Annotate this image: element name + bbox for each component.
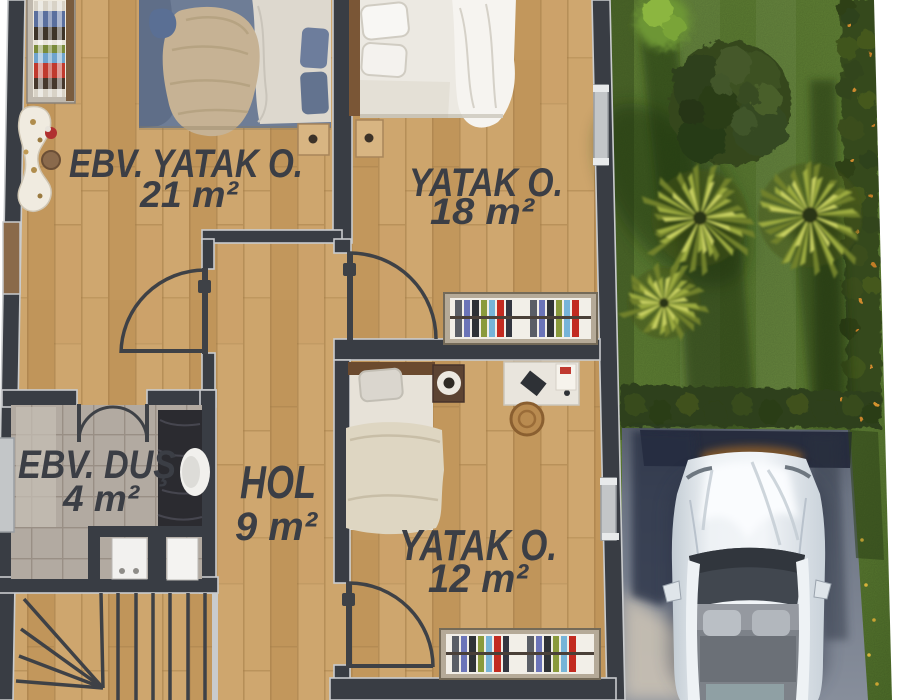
svg-text:9 m²: 9 m² <box>235 505 319 549</box>
svg-text:21 m²: 21 m² <box>139 174 240 215</box>
svg-text:12 m²: 12 m² <box>428 557 530 601</box>
svg-text:HOL: HOL <box>240 456 316 508</box>
svg-text:18 m²: 18 m² <box>430 191 536 232</box>
svg-text:4 m²: 4 m² <box>62 478 141 519</box>
